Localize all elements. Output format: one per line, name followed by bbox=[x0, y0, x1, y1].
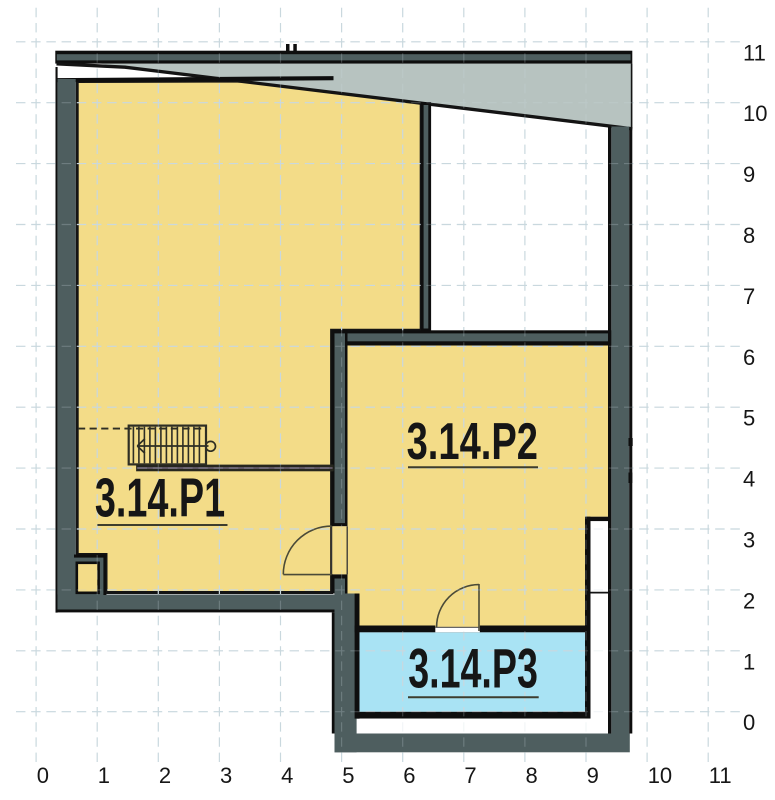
svg-text:2: 2 bbox=[159, 763, 171, 788]
svg-text:3.14.P1: 3.14.P1 bbox=[95, 466, 225, 528]
svg-text:4: 4 bbox=[743, 467, 755, 492]
svg-text:0: 0 bbox=[37, 763, 49, 788]
svg-text:2: 2 bbox=[743, 588, 755, 613]
svg-text:3.14.P2: 3.14.P2 bbox=[407, 412, 538, 470]
svg-text:1: 1 bbox=[743, 649, 755, 674]
svg-text:6: 6 bbox=[403, 763, 415, 788]
svg-text:8: 8 bbox=[743, 223, 755, 248]
svg-text:3: 3 bbox=[220, 763, 232, 788]
svg-text:10: 10 bbox=[743, 101, 767, 126]
svg-text:8: 8 bbox=[526, 763, 538, 788]
svg-text:3.14.P3: 3.14.P3 bbox=[408, 638, 538, 700]
svg-text:9: 9 bbox=[587, 763, 599, 788]
svg-text:4: 4 bbox=[281, 763, 293, 788]
svg-text:0: 0 bbox=[743, 710, 755, 735]
svg-text:6: 6 bbox=[743, 345, 755, 370]
svg-text:7: 7 bbox=[743, 284, 755, 309]
svg-text:11: 11 bbox=[709, 763, 732, 788]
svg-text:9: 9 bbox=[743, 162, 755, 187]
svg-text:5: 5 bbox=[342, 763, 354, 788]
svg-text:1: 1 bbox=[98, 763, 110, 788]
svg-text:5: 5 bbox=[743, 406, 755, 431]
svg-text:7: 7 bbox=[464, 763, 476, 788]
svg-text:11: 11 bbox=[743, 40, 766, 65]
svg-text:3: 3 bbox=[743, 528, 755, 553]
svg-text:10: 10 bbox=[648, 763, 672, 788]
